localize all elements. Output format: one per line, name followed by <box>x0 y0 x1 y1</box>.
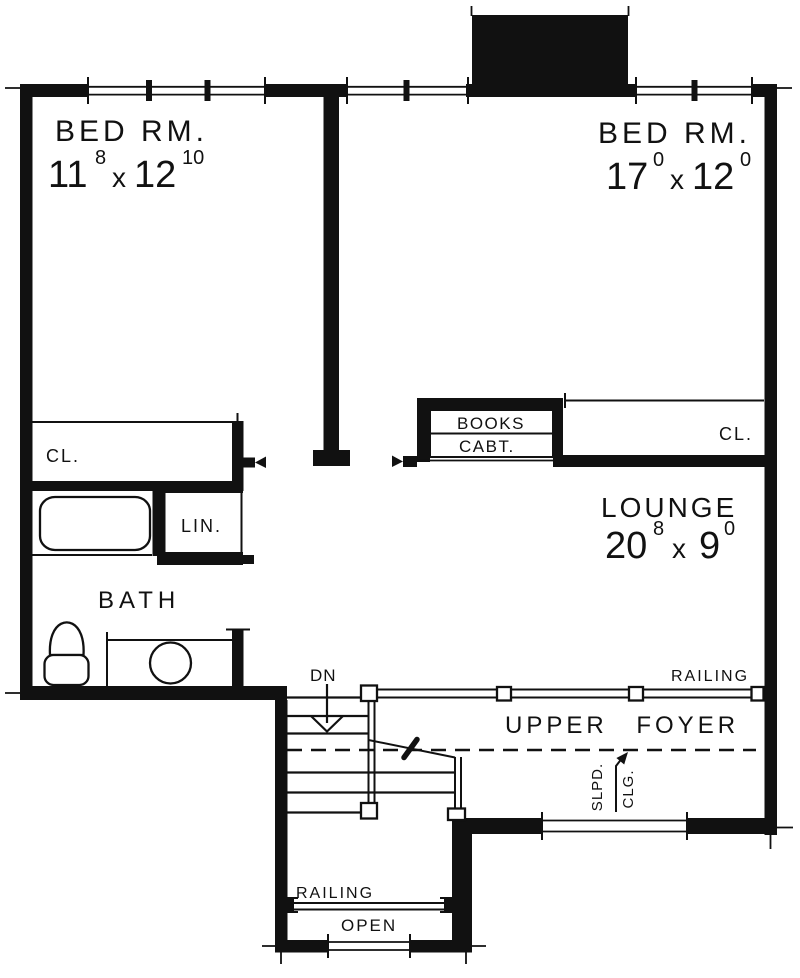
upper-foyer-label: UPPER FOYER <box>505 712 739 739</box>
railing-rails <box>377 690 764 698</box>
bed2-label: BED RM. <box>598 117 751 150</box>
bed2-dim-a-sup: 0 <box>653 149 664 171</box>
upper-foyer-railing <box>377 687 764 701</box>
bath-label: BATH <box>98 587 180 614</box>
vanity-side-wall <box>232 630 244 687</box>
window-stairwell <box>328 934 410 958</box>
railing-upper-label: RAILING <box>671 668 749 685</box>
bed1-dim-a: 11 <box>48 154 87 196</box>
floor-plan-drawing: BED RM. 11 8 x 12 10 BED RM. 17 0 x 12 0… <box>0 0 800 978</box>
window-mullion <box>205 80 211 101</box>
window-mullion <box>692 80 698 101</box>
bedroom-divider-wall <box>324 97 340 452</box>
window-foyer <box>542 812 687 840</box>
top-wall-segment <box>265 84 347 97</box>
bathtub <box>40 497 150 550</box>
railing-post <box>752 687 764 701</box>
staircase <box>287 684 465 820</box>
railing-lower-label: RAILING <box>296 885 374 902</box>
door-stop <box>403 456 417 467</box>
linen-label: LIN. <box>181 516 222 536</box>
stairwell-left-wall <box>275 700 288 952</box>
closet-bath-wall <box>20 481 243 491</box>
bookcase-left-wall <box>417 398 430 462</box>
lounge-label: LOUNGE <box>601 492 737 523</box>
wall-end-nub <box>243 555 254 564</box>
door-stop-flag <box>255 457 266 469</box>
linen-bottom-wall <box>157 552 243 565</box>
cabinet-label: CABT. <box>459 437 515 456</box>
window-bed2-left <box>347 77 468 104</box>
floor-plan-page: BED RM. 11 8 x 12 10 BED RM. 17 0 x 12 0… <box>0 0 800 978</box>
newel-post-top <box>361 686 377 702</box>
books-label: BOOKS <box>457 414 525 433</box>
window-mullion <box>404 80 410 101</box>
closet-left-label: CL. <box>46 446 80 466</box>
bed2-dim-b-sup: 0 <box>740 149 751 171</box>
bed1-dim-b-sup: 10 <box>182 147 204 169</box>
sloped-ceiling-label-1: SLPD. <box>589 763 606 811</box>
newel-post-lower-flight <box>448 809 465 821</box>
vanity-ticks <box>107 630 250 641</box>
text-labels: BED RM. 11 8 x 12 10 BED RM. 17 0 x 12 0… <box>46 115 753 935</box>
lounge-dim-a: 20 <box>605 525 647 567</box>
foyer-bottom-wall <box>687 818 777 834</box>
newel-post-bottom <box>361 803 377 819</box>
chimney <box>472 15 628 97</box>
toilet-tank <box>45 655 89 685</box>
sloped-ceiling-label-2: CLG. <box>620 769 637 808</box>
open-label: OPEN <box>341 916 397 935</box>
top-wall-segment <box>628 84 636 97</box>
bed1-dim-sep: x <box>112 162 126 193</box>
door-stop-flag <box>392 456 403 468</box>
door-stop <box>243 458 255 468</box>
window-bed1 <box>88 77 265 104</box>
sink <box>150 643 191 684</box>
lounge-dim-sep: x <box>672 533 686 564</box>
bookcase-top-wall <box>417 398 563 410</box>
left-exterior-wall <box>20 84 33 700</box>
lounge-dim-b-sup: 0 <box>724 518 735 540</box>
window-bed2-right <box>636 77 752 104</box>
bed2-dim-b: 12 <box>692 156 734 198</box>
bedroom-divider-wall-cap <box>313 450 350 466</box>
stair-stringer <box>369 687 375 818</box>
railing-post <box>497 687 511 701</box>
railing-end-post <box>286 897 294 913</box>
tub-linen-divider-wall <box>153 491 166 556</box>
railing-post <box>629 687 643 701</box>
bed2-dim-a: 17 <box>606 156 648 198</box>
lounge-dim-b: 9 <box>699 525 720 567</box>
railing-end-post <box>444 897 452 913</box>
bed1-dim-a-sup: 8 <box>95 147 106 169</box>
closet-right-label: CL. <box>719 424 753 444</box>
bed1-dim-b: 12 <box>134 154 176 196</box>
bath-bottom-wall <box>20 686 287 700</box>
closet-right-bottom-wall <box>553 455 767 467</box>
lounge-dim-a-sup: 8 <box>653 518 664 540</box>
down-label: DN <box>310 666 337 685</box>
bed1-label: BED RM. <box>55 115 208 148</box>
railing-rails <box>288 903 452 910</box>
closet-left-side-wall <box>232 421 244 491</box>
door-stops <box>243 456 417 565</box>
bed2-dim-sep: x <box>670 164 684 195</box>
bookcase-right-wall <box>553 398 563 462</box>
toilet-bowl <box>50 622 84 655</box>
window-mullion <box>146 80 152 101</box>
stairwell-right-wall <box>452 818 472 952</box>
stairwell-bottom-wall <box>275 940 328 953</box>
